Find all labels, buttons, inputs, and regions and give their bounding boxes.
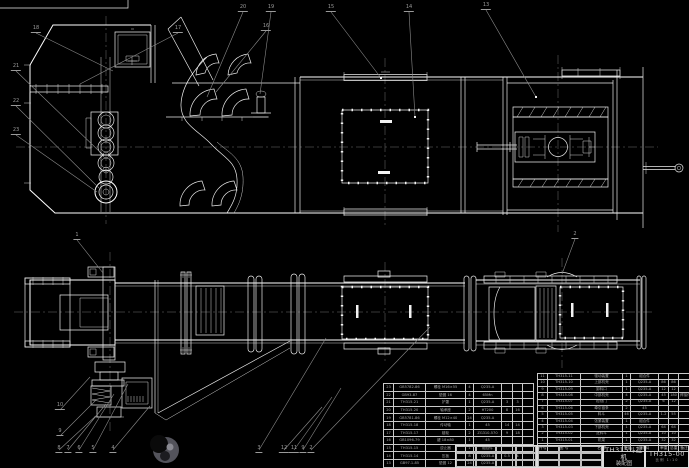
part-callout: 16: [261, 24, 271, 31]
curved-casing-wall: [181, 57, 237, 213]
product-title: TH315斗提机: [604, 447, 644, 461]
middle-casing-plan: [115, 272, 465, 354]
part-callout: 22: [11, 99, 21, 106]
part-callout: 2: [571, 232, 578, 239]
part-callout: 5: [89, 446, 96, 453]
part-callout: 12: [279, 446, 289, 453]
part-callout: 18: [31, 26, 41, 33]
part-callout: 8: [55, 446, 62, 453]
part-callout: 19: [266, 5, 276, 12]
title-cell: TH315斗提机 装配图: [603, 445, 645, 468]
scale-note: 比例 1:10: [656, 458, 679, 463]
bom-row: 23GB5782-86螺栓 M16×554Q235-A: [384, 384, 534, 392]
bom-row: 21TH315-21护罩1Q235-A33: [384, 399, 534, 407]
part-callout: 9: [299, 446, 306, 453]
watermark-logo: [150, 435, 179, 463]
part-callout: 10: [55, 403, 65, 410]
drawing-number: TH315-00: [649, 450, 685, 458]
vent-box: [115, 29, 150, 67]
part-callout: 7: [64, 446, 71, 453]
part-callout: 1: [73, 233, 80, 240]
part-callout: 11: [289, 446, 299, 453]
part-callout: 23: [11, 128, 21, 135]
part-callout: 17: [173, 26, 183, 33]
drawing-type: 装配图: [616, 461, 633, 467]
middle-casing-elevation: [300, 77, 643, 213]
takeup-screw-right: [643, 162, 683, 174]
signature-block: [537, 445, 603, 468]
part-callout: 14: [404, 5, 414, 12]
bom-row: 17TH315-17链轮2ZG310-570918: [384, 429, 534, 437]
part-callout: 2: [307, 446, 314, 453]
sheet-frame-corner: [0, 0, 128, 8]
bom-table-right: 11TH315-11驱动装置1组合件10TH315-10上部机壳1Q235-A8…: [537, 373, 689, 452]
tail-section-elevation: [477, 67, 683, 228]
drawing-sheet: 181716201915141321222312109876543121192 …: [0, 0, 689, 468]
tension-sprocket-stack: [86, 112, 118, 203]
part-callout: 13: [481, 3, 491, 10]
drawing-number-cell: TH315-00 比例 1:10: [645, 445, 689, 468]
head-end-cap-plan: [25, 277, 70, 348]
elevation-view: [16, 16, 683, 232]
part-callout: 15: [326, 5, 336, 12]
part-callout: 6: [75, 446, 82, 453]
bom-row: 22GB93-87垫圈 16465Mn: [384, 391, 534, 399]
bom-row: 16GB1096-79键 18×80145: [384, 437, 534, 445]
part-callout: 9: [56, 429, 63, 436]
grease-fitting: [251, 91, 271, 117]
part-callout: 4: [109, 446, 116, 453]
bom-row: 19GB5781-86螺栓 M12×4024Q235-A: [384, 414, 534, 422]
bom-row: 18TH315-18传动轴1451414: [384, 421, 534, 429]
bom-row: 20TH315-20轴承座2HT200816: [384, 406, 534, 414]
part-callout: 20: [238, 5, 248, 12]
transition-funnel: [155, 341, 290, 420]
part-callout: 21: [11, 64, 21, 71]
tail-section-plan: [464, 272, 646, 353]
head-casing-outline: [30, 25, 300, 213]
revision-block: [455, 445, 537, 468]
drive-shaft-assembly: [91, 362, 152, 417]
part-callout: 3: [255, 446, 262, 453]
